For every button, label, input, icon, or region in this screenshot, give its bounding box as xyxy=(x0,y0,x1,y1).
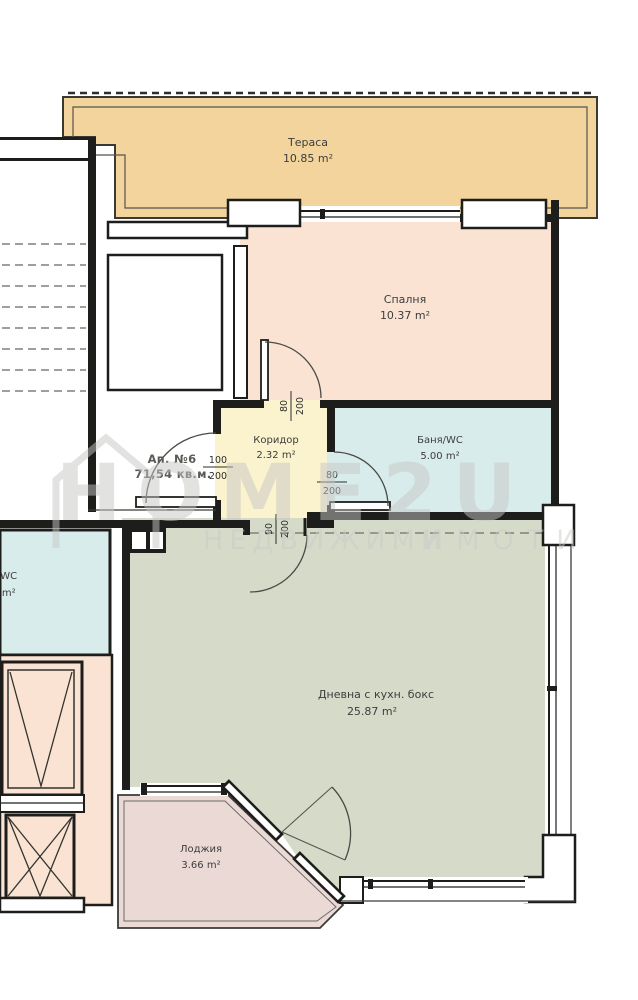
corridor-top-wall-left xyxy=(215,400,264,408)
bedroom-window-tick-2 xyxy=(320,209,325,219)
corridor-top-wall-right xyxy=(320,400,558,408)
svg-text:200: 200 xyxy=(295,397,306,415)
corridor-name: Коридор xyxy=(253,435,298,446)
loggia-area: 3.66 m² xyxy=(181,860,220,871)
svg-text:80: 80 xyxy=(279,400,290,412)
bedroom-pier-left xyxy=(228,200,300,226)
corridor-left-wall-top xyxy=(213,400,221,434)
bathroom-wall-top xyxy=(327,402,335,452)
floor-plan-page: Тераса 10.85 m² Спалня 10.37 m² Коридор … xyxy=(0,0,638,1000)
stair-core-band xyxy=(0,137,88,161)
stair-core-band-top xyxy=(0,137,88,140)
loggia-window-end-1 xyxy=(141,783,147,795)
living-right-window-tick xyxy=(547,686,557,691)
terrace-name: Тераса xyxy=(287,136,328,149)
living-left-wall xyxy=(122,520,130,790)
watermark-tagline-word2: ИМОТИ xyxy=(423,525,589,556)
bedroom-name: Спалня xyxy=(384,293,426,306)
terrace-area: 10.85 m² xyxy=(283,152,333,165)
elevator-bottom-band xyxy=(0,898,84,912)
shaft-room xyxy=(108,255,222,390)
stair-core-band-bottom xyxy=(0,158,88,161)
watermark: HOME2U НЕДВИЖИМИ ИМОТИ xyxy=(56,438,589,556)
room-neighbor-wc xyxy=(0,530,110,655)
loggia-name: Лоджия xyxy=(180,844,222,855)
bathroom-name: Баня/WC xyxy=(417,435,463,446)
staircase-steps xyxy=(2,244,86,391)
living-bottom-window-tick-1 xyxy=(368,879,373,889)
elevator-area xyxy=(0,655,112,905)
living-bottom-window-tick-2 xyxy=(428,879,433,889)
bedroom-left-wall-bar xyxy=(234,246,247,398)
bedroom-window-band xyxy=(276,206,460,222)
watermark-tagline-word1: НЕДВИЖИМИ xyxy=(203,525,447,556)
neighbor-wc-name: я/WC xyxy=(0,571,17,582)
bedroom-door-leaf xyxy=(261,340,268,400)
bottom-pier-left xyxy=(340,877,363,903)
living-name: Дневна с кухн. бокс xyxy=(318,688,434,701)
loggia-window-band xyxy=(140,783,228,796)
bedroom-area: 10.37 m² xyxy=(380,309,430,322)
neighbor-wc-area: 2 m² xyxy=(0,588,16,599)
bedroom-pier-right xyxy=(462,200,546,228)
shaft-top-bar xyxy=(108,222,247,238)
floor-plan-drawing: Тераса 10.85 m² Спалня 10.37 m² Коридор … xyxy=(0,0,638,1000)
right-outer-wall xyxy=(551,200,559,518)
living-area: 25.87 m² xyxy=(347,705,397,718)
